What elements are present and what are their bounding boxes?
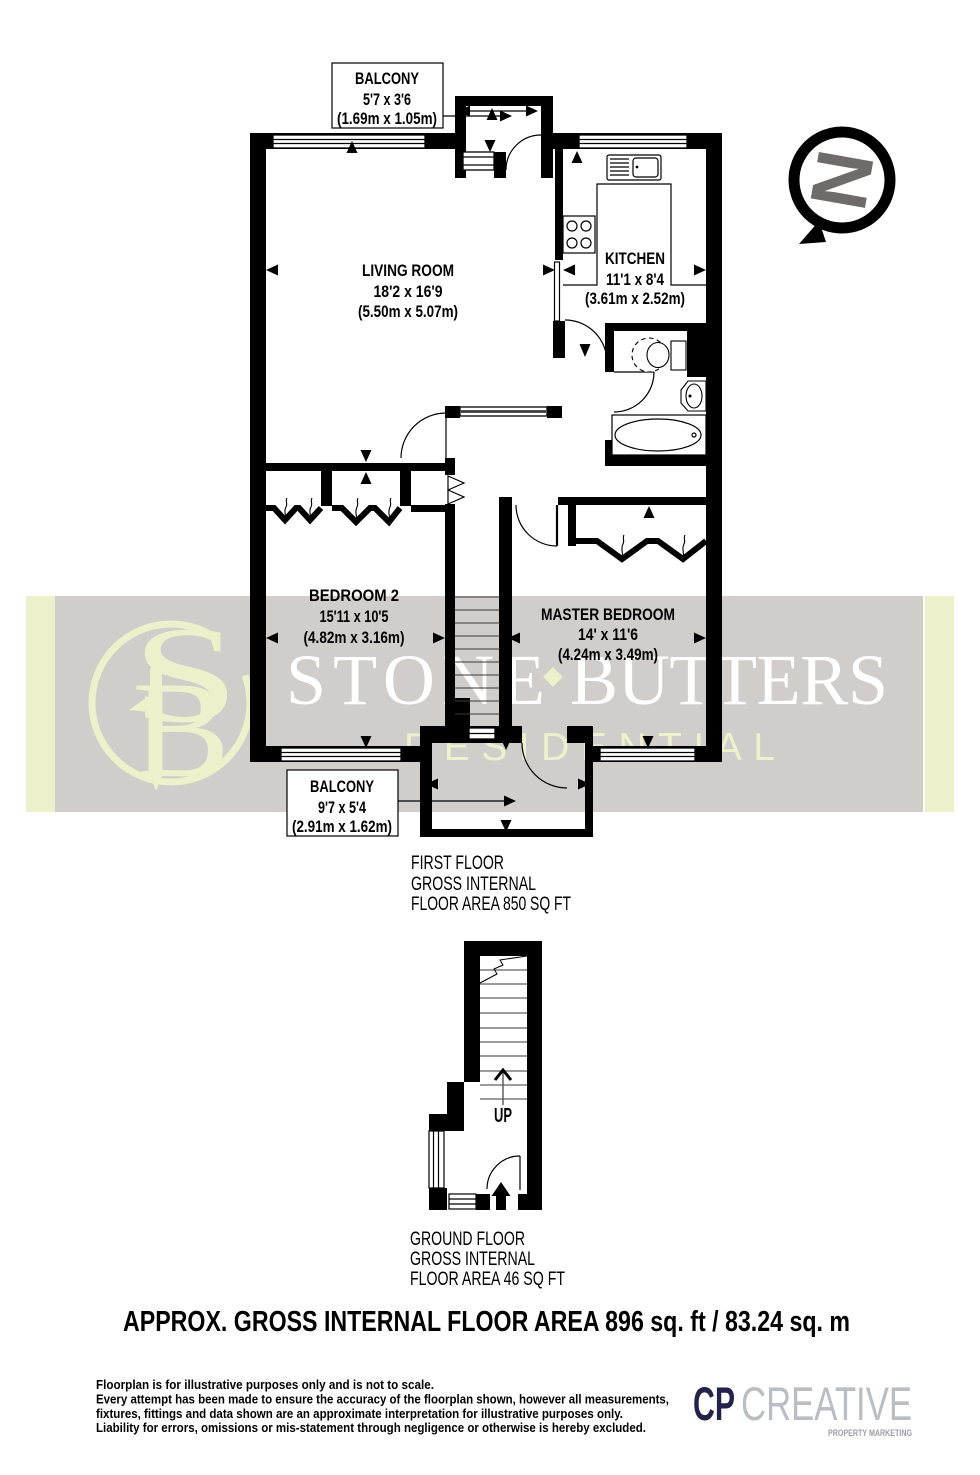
svg-text:KITCHEN: KITCHEN bbox=[605, 249, 665, 268]
svg-text:BALCONY: BALCONY bbox=[355, 69, 419, 88]
svg-text:(4.24m x 3.49m): (4.24m x 3.49m) bbox=[558, 645, 658, 664]
svg-text:(4.82m x 3.16m): (4.82m x 3.16m) bbox=[304, 628, 405, 647]
svg-text:PROPERTY MARKETING: PROPERTY MARKETING bbox=[828, 1428, 912, 1439]
svg-text:CP: CP bbox=[693, 1377, 735, 1430]
svg-text:MASTER BEDROOM: MASTER BEDROOM bbox=[541, 605, 675, 624]
svg-text:18'2 x 16'9: 18'2 x 16'9 bbox=[374, 282, 443, 301]
svg-text:GROSS INTERNAL: GROSS INTERNAL bbox=[411, 874, 536, 895]
svg-text:11'1 x 8'4: 11'1 x 8'4 bbox=[606, 270, 664, 289]
svg-text:LIVING ROOM: LIVING ROOM bbox=[362, 261, 454, 280]
svg-text:GROSS INTERNAL: GROSS INTERNAL bbox=[410, 1249, 535, 1270]
svg-text:GROUND FLOOR: GROUND FLOOR bbox=[410, 1229, 525, 1250]
svg-text:5'7 x 3'6: 5'7 x 3'6 bbox=[363, 90, 411, 109]
svg-text:Floorplan is for illustrative: Floorplan is for illustrative purposes o… bbox=[96, 1377, 434, 1392]
svg-text:FLOOR AREA 46 SQ FT: FLOOR AREA 46 SQ FT bbox=[410, 1269, 565, 1290]
svg-text:UP: UP bbox=[494, 1105, 512, 1127]
svg-text:FLOOR AREA 850 SQ FT: FLOOR AREA 850 SQ FT bbox=[411, 894, 571, 915]
svg-text:Liability for errors, omission: Liability for errors, omissions or mis-s… bbox=[96, 1420, 646, 1435]
svg-text:B: B bbox=[132, 653, 230, 806]
svg-text:9'7 x 5'4: 9'7 x 5'4 bbox=[318, 798, 366, 817]
svg-text:(2.91m x 1.62m): (2.91m x 1.62m) bbox=[292, 817, 392, 836]
svg-text:BALCONY: BALCONY bbox=[310, 777, 374, 796]
svg-text:fixtures, fittings and data sh: fixtures, fittings and data shown are an… bbox=[96, 1406, 623, 1421]
svg-text:(1.69m x 1.05m): (1.69m x 1.05m) bbox=[337, 109, 437, 128]
svg-text:BEDROOM 2: BEDROOM 2 bbox=[309, 586, 399, 605]
svg-text:(5.50m x 5.07m): (5.50m x 5.07m) bbox=[358, 302, 458, 321]
svg-text:CREATIVE: CREATIVE bbox=[741, 1377, 912, 1430]
svg-text:Every attempt has been made to: Every attempt has been made to ensure th… bbox=[96, 1392, 669, 1407]
svg-text:FIRST FLOOR: FIRST FLOOR bbox=[411, 853, 504, 874]
svg-text:(3.61m x 2.52m): (3.61m x 2.52m) bbox=[585, 289, 685, 308]
svg-text:14' x 11'6: 14' x 11'6 bbox=[578, 625, 638, 644]
svg-text:15'11 x 10'5: 15'11 x 10'5 bbox=[320, 607, 389, 626]
svg-text:APPROX. GROSS INTERNAL FLOOR A: APPROX. GROSS INTERNAL FLOOR AREA 896 sq… bbox=[123, 1306, 850, 1338]
